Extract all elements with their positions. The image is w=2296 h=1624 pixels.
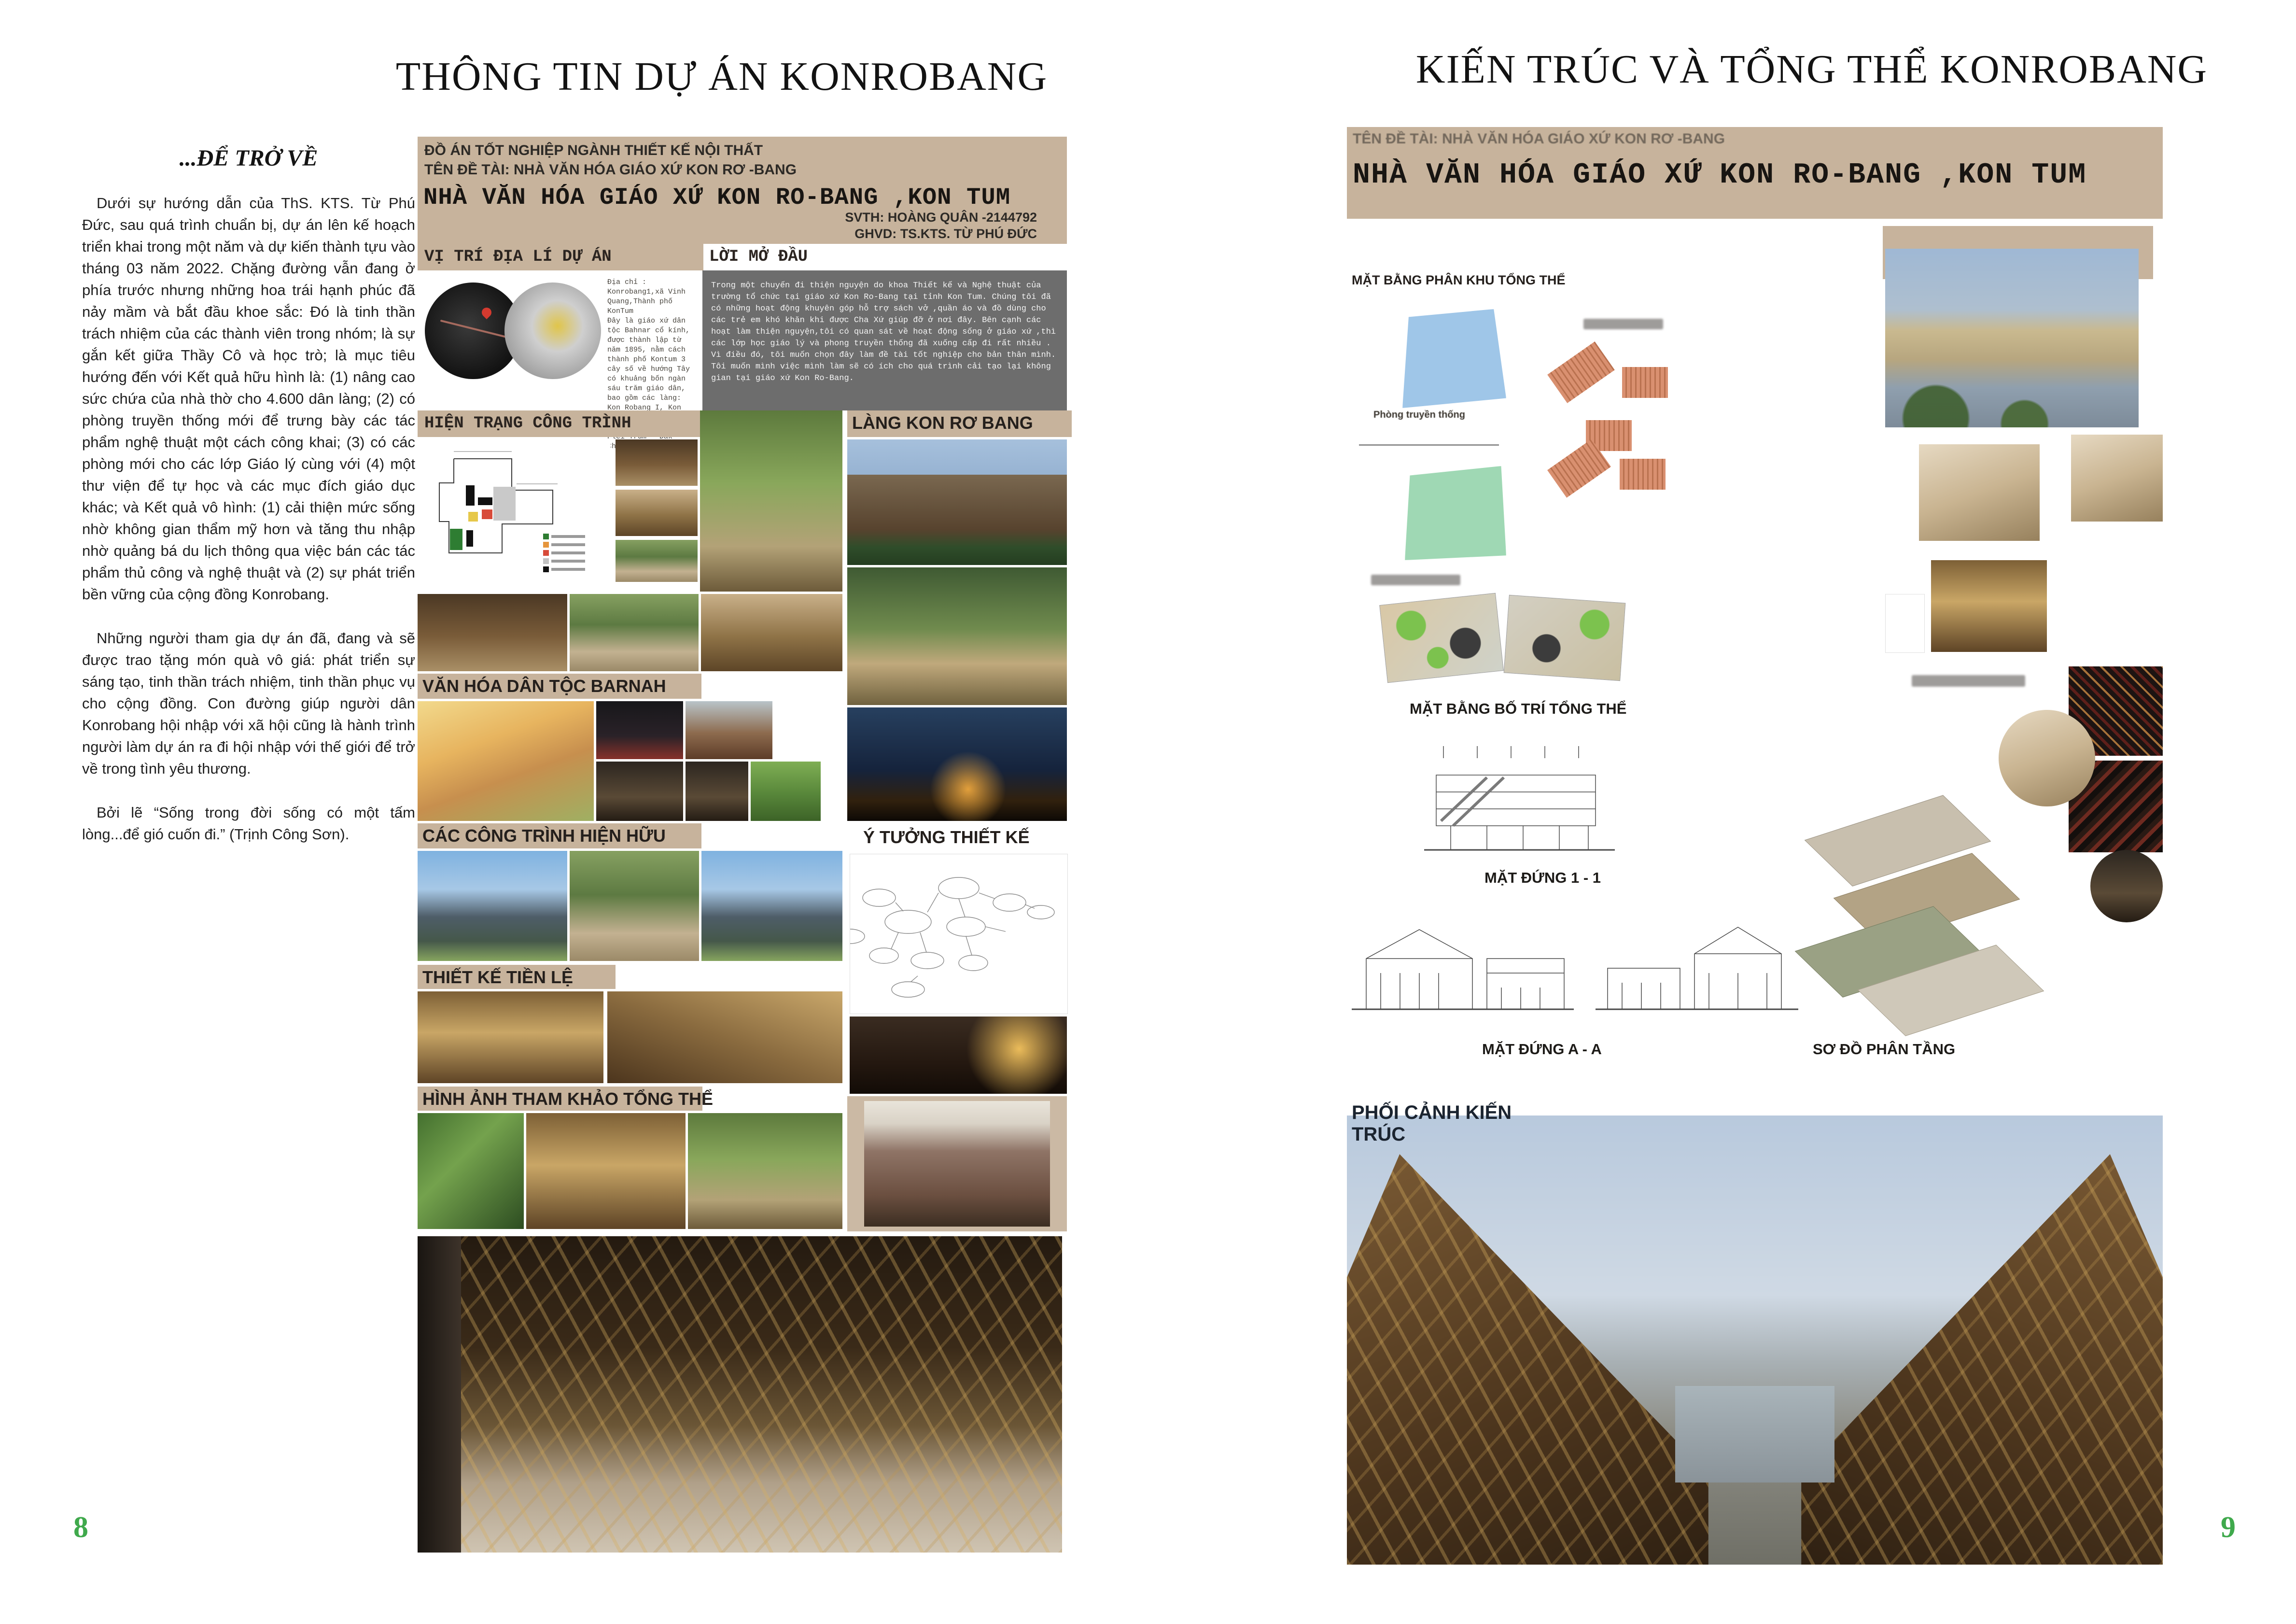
right-page-title: KIẾN TRÚC VÀ TỔNG THỂ KONROBANG [1352,46,2272,93]
render-courtyard-gap [1675,1386,1834,1483]
photo-rong-courtyard [570,851,699,961]
photo-reference-landscape [688,1113,842,1229]
article-paragraph: Dưới sự hướng dẫn của ThS. KTS. Từ Phú Đ… [82,192,415,605]
photo-reference-library [526,1113,686,1229]
article-body: Dưới sự hướng dẫn của ThS. KTS. Từ Phú Đ… [82,192,415,867]
photo-model-bamboo-frame [1931,560,2047,652]
photo-festival-crowd [686,701,772,759]
photo-rong-roof-museum [864,1101,1050,1227]
render-pavilion-right [1786,1154,2163,1565]
photo-precedent-interior-2 [607,991,842,1083]
photo-weaver [596,762,683,821]
zone-orange-caption-blurred [1583,319,1663,329]
photo-stilt-house [847,567,1067,705]
photo-reference-leaves [418,1113,524,1229]
bamboo-beams-texture [418,1236,1062,1553]
zone-green-caption-blurred [1371,575,1460,585]
elevation-1-svg [1414,729,1622,862]
right-poster-header: TÊN ĐỀ TÀI: NHÀ VĂN HÓA GIÁO XỨ KON RƠ -… [1347,127,2163,219]
intro-box: Trong một chuyến đi thiện nguyện do khoa… [702,270,1067,410]
poster-header-line1: ĐỒ ÁN TỐT NGHIỆP NGÀNH THIẾT KẾ NỘI THẤT [424,142,763,159]
label-perspective: PHỐI CẢNH KIẾN TRÚC [1352,1102,1569,1126]
map-satellite-circle [504,282,601,379]
photo-church-interior-small [616,439,698,486]
photo-classroom-hut [701,594,842,671]
photo-class-small [616,490,698,536]
poster-student: SVTH: HOÀNG QUÂN -2144792 [845,210,1037,225]
pavilion-right-beams [1786,1154,2163,1565]
render-pavilion-left [1347,1154,1723,1565]
photo-precedent-interior-1 [418,991,603,1083]
zone-green-area [1405,466,1506,560]
zone-orange-block-1 [1547,341,1615,403]
magazine-spread: THÔNG TIN DỰ ÁN KONROBANG ...ĐỂ TRỞ VỀ D… [0,0,2296,1624]
label-elevation-a: MẶT ĐỨNG A - A [1482,1041,1602,1058]
label-layout-plan: MẶT BẰNG BỐ TRÍ TỔNG THỂ [1410,700,1626,718]
elevation-a-drawing-2 [1593,901,1801,1026]
section-label-location: VỊ TRÍ ĐỊA LÍ DỰ ÁN [418,244,703,270]
label-zoning: MẶT BẰNG PHÂN KHU TỔNG THỂ [1352,273,1565,288]
article-paragraph: Bởi lẽ “Sống trong đời sống có một tấm l… [82,802,415,845]
photo-courtyard-tree [570,594,699,671]
photo-model-circle-2 [2090,850,2163,922]
map-road-line [440,320,511,339]
photo-model-roof [2071,435,2163,522]
layer-axon-diagram [1796,802,2047,1029]
photo-wooden-church [418,851,567,961]
poster-advisor: GHVD: TS.KTS. TỪ PHÚ ĐỨC [854,226,1037,241]
photo-bible-candle [850,1017,1067,1094]
mindmap-svg [850,854,1067,1014]
section-label-existing: CÁC CÔNG TRÌNH HIỆN HỮU [418,823,701,848]
site-plan-tilted-2 [1504,595,1626,681]
idea-mindmap-sketch [850,854,1068,1014]
photo-bamboo-grove [700,410,842,592]
right-poster-main-title: NHÀ VĂN HÓA GIÁO XỨ KON RO-BANG ,KON TUM [1353,159,2086,192]
left-page-title: THÔNG TIN DỰ ÁN KONROBANG [333,53,1110,100]
map-pin-icon [480,306,493,319]
elevation-1-drawing [1414,729,1622,862]
zone-orange-block-2 [1622,367,1668,398]
photo-bamboo-hall-interior [418,1236,1062,1553]
zone-blue-caption: Phòng truyền thống [1373,410,1465,421]
poster-main-title: NHÀ VĂN HÓA GIÁO XỨ KON RO-BANG ,KON TUM [423,184,1010,211]
section-label-reference: HÌNH ẢNH THAM KHẢO TỔNG THỂ [418,1087,702,1111]
article-title: ...ĐỂ TRỞ VỀ [82,145,415,171]
hall-dark-column [418,1236,461,1553]
article-paragraph: Những người tham gia dự án đã, đang và s… [82,627,415,779]
intro-text: Trong một chuyến đi thiện nguyện do khoa… [702,270,1067,394]
right-page-number: 9 [2221,1511,2236,1545]
label-elevation-1: MẶT ĐỨNG 1 - 1 [1484,869,1601,887]
photo-traditional-garment [596,701,683,759]
photo-rice-terraces [751,762,821,821]
section-label-idea: Ý TƯỞNG THIẾT KẾ [858,825,1072,850]
label-layer-diagram: SƠ ĐỒ PHÂN TẦNG [1813,1041,1955,1058]
model-caption-blurred [1912,675,2025,687]
zone-orange-block-5 [1620,459,1666,490]
section-label-precedent: THIẾT KẾ TIỀN LỆ [418,965,616,989]
zone-blue-traditional-room [1402,309,1506,408]
photo-village-painting [418,701,594,821]
poster-header-line2: TÊN ĐỀ TÀI: NHÀ VĂN HÓA GIÁO XỨ KON RƠ -… [424,162,797,178]
photo-model-circle-1 [1999,710,2095,806]
photo-rong-house [847,439,1067,565]
left-page-number: 8 [73,1511,88,1545]
elevation-a-drawing-1 [1347,901,1579,1026]
rong-roof-panel [847,1096,1067,1231]
photo-museum-interior [418,594,567,671]
section-label-intro: LỜI MỞ ĐẦU [702,244,1074,270]
right-poster-header-line: TÊN ĐỀ TÀI: NHÀ VĂN HÓA GIÁO XỨ KON RƠ -… [1353,131,1725,147]
site-plan-tilted-1 [1379,593,1504,683]
zoning-divider-line [1359,444,1499,446]
section-label-culture: VĂN HÓA DÂN TỘC BARNAH [418,674,701,699]
photo-model-rong [1919,444,2040,541]
section-label-status: HIỆN TRẠNG CÔNG TRÌNH [418,410,703,437]
photo-courtyard-render [1885,249,2139,427]
photo-night-craft [686,762,748,821]
left-poster-header: ĐỒ ÁN TỐT NGHIỆP NGÀNH THIẾT KẾ NỘI THẤT… [418,137,1067,244]
elevation-a-svg-1 [1347,901,1579,1026]
photo-bonfire-night [847,707,1067,821]
small-sketch [1885,594,1925,653]
existing-floor-plan-drawing [420,439,611,582]
floor-plan-svg [420,439,611,582]
pavilion-left-beams [1347,1154,1723,1565]
photo-seminary-building [701,851,842,961]
photo-yard-small [616,540,698,582]
section-label-village: LÀNG KON RƠ BANG [847,410,1072,437]
photo-perspective-render [1347,1116,2163,1565]
elevation-a-svg-2 [1593,901,1801,1026]
